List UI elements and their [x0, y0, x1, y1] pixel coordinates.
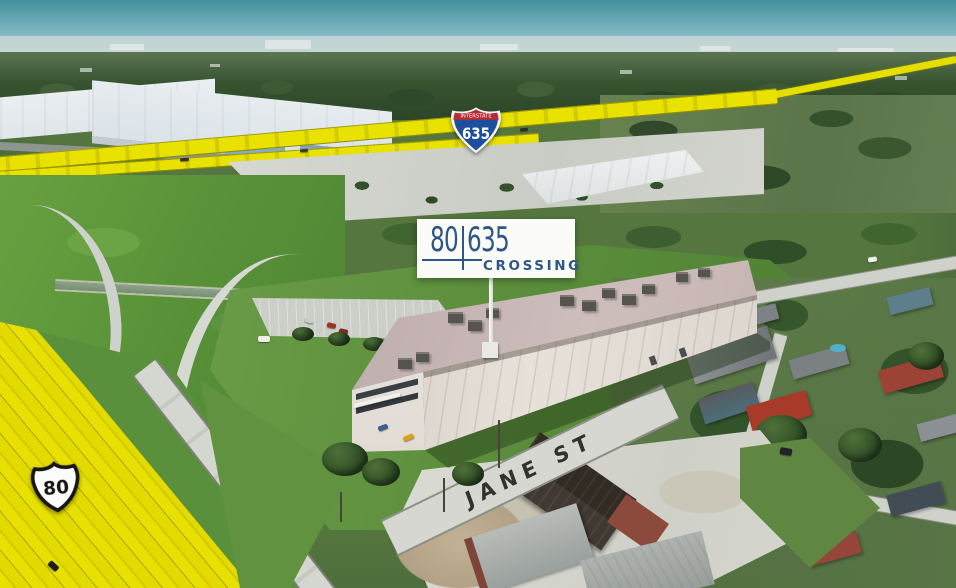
tree — [362, 458, 400, 486]
car — [868, 256, 878, 262]
us-route-80-shield-icon: 80 — [28, 458, 85, 516]
property-sign: 80 635 CROSSING — [417, 219, 575, 278]
us-route-number: 80 — [42, 477, 70, 500]
distant-rooftop — [895, 76, 907, 80]
rooftop-hvac-unit — [468, 320, 482, 331]
rooftop-hvac-unit — [676, 272, 688, 282]
tree — [292, 327, 314, 341]
utility-pole — [340, 492, 342, 522]
distant-rooftop — [210, 64, 220, 67]
sign-subtitle: CROSSING — [483, 258, 582, 274]
sign-rule — [422, 259, 482, 261]
distant-rooftop — [620, 70, 632, 74]
distant-building — [110, 44, 144, 50]
sign-number-635: 635 — [467, 223, 509, 257]
rooftop-hvac-unit — [622, 294, 636, 305]
aerial-property-photo: JANE ST — [0, 0, 956, 588]
truck-on-635 — [520, 128, 528, 132]
industrial-building — [330, 250, 770, 485]
interstate-caption: INTERSTATE — [460, 114, 491, 120]
distant-rooftop — [80, 68, 92, 72]
utility-pole — [498, 420, 500, 468]
sign-divider — [462, 226, 464, 270]
distant-building — [700, 46, 730, 51]
utility-pole — [443, 478, 445, 512]
distant-building — [480, 44, 518, 50]
rooftop-hvac-unit — [642, 284, 655, 294]
interstate-number: 635 — [462, 124, 490, 143]
rooftop-hvac-unit — [582, 300, 596, 311]
sign-number-80: 80 — [430, 223, 458, 257]
rooftop-hvac-unit — [698, 268, 710, 277]
tree — [838, 428, 882, 462]
rooftop-hvac-unit — [448, 312, 463, 323]
rooftop-hvac-unit — [416, 352, 429, 362]
rooftop-hvac-unit — [602, 288, 615, 298]
rooftop-hvac-unit — [560, 295, 574, 306]
swimming-pool — [830, 344, 846, 352]
van — [258, 336, 270, 342]
tree — [908, 342, 944, 370]
tree — [452, 462, 484, 486]
sign-post-base — [482, 342, 498, 358]
distant-building — [265, 40, 311, 49]
interstate-635-shield-icon: INTERSTATE 635 — [449, 106, 503, 154]
rooftop-hvac-unit — [398, 358, 412, 369]
